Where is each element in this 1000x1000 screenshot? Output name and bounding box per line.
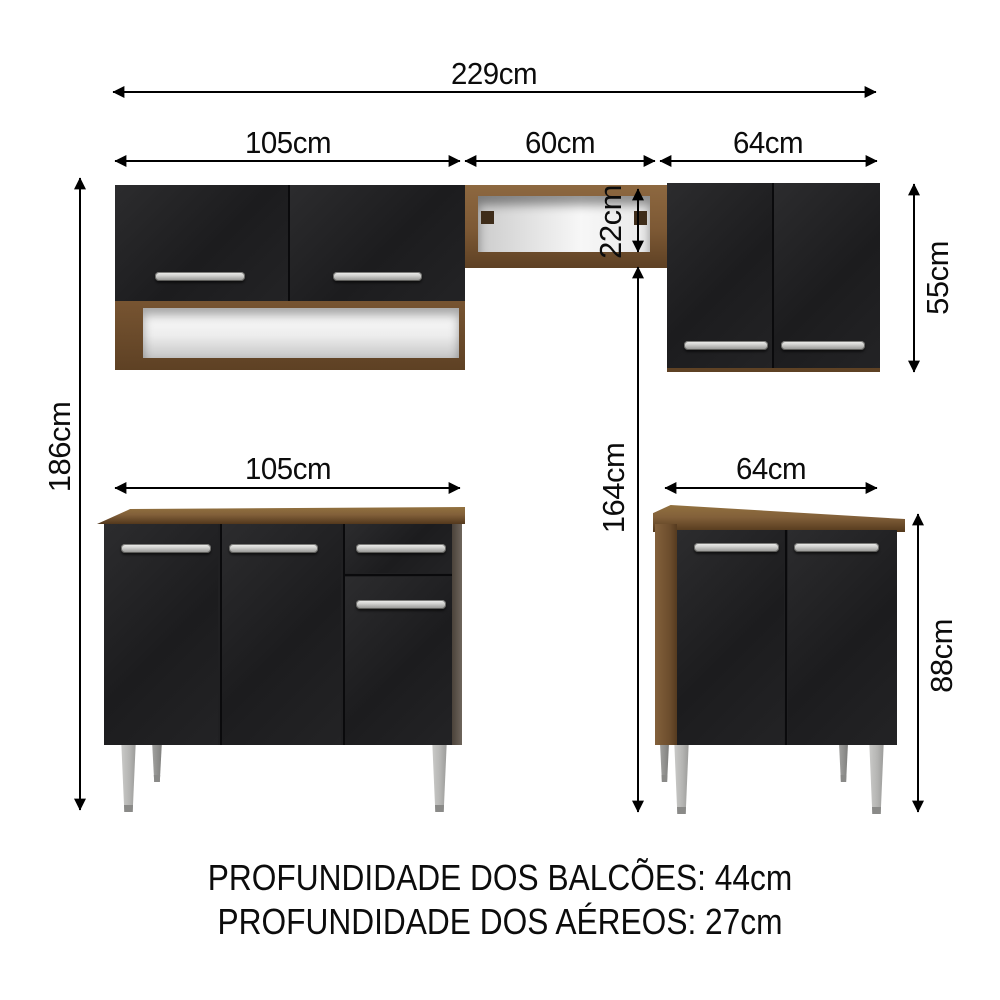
kitchen-dimensions-diagram: 229cm 105cm 60cm 64cm 186cm 55cm 22cm 16…	[0, 0, 1000, 1000]
dimension-label-upper-left-width: 105cm	[222, 125, 355, 161]
dimension-labels: 229cm 105cm 60cm 64cm 186cm 55cm 22cm 16…	[0, 0, 1000, 1000]
dimension-label-upper-right-width: 64cm	[702, 125, 835, 161]
dimension-label-counter-right-width: 64cm	[705, 451, 838, 487]
dimension-label-overall-width: 229cm	[428, 56, 561, 92]
dimension-label-shelf-width: 60cm	[494, 125, 627, 161]
dimension-label-counter-left-width: 105cm	[222, 451, 355, 487]
